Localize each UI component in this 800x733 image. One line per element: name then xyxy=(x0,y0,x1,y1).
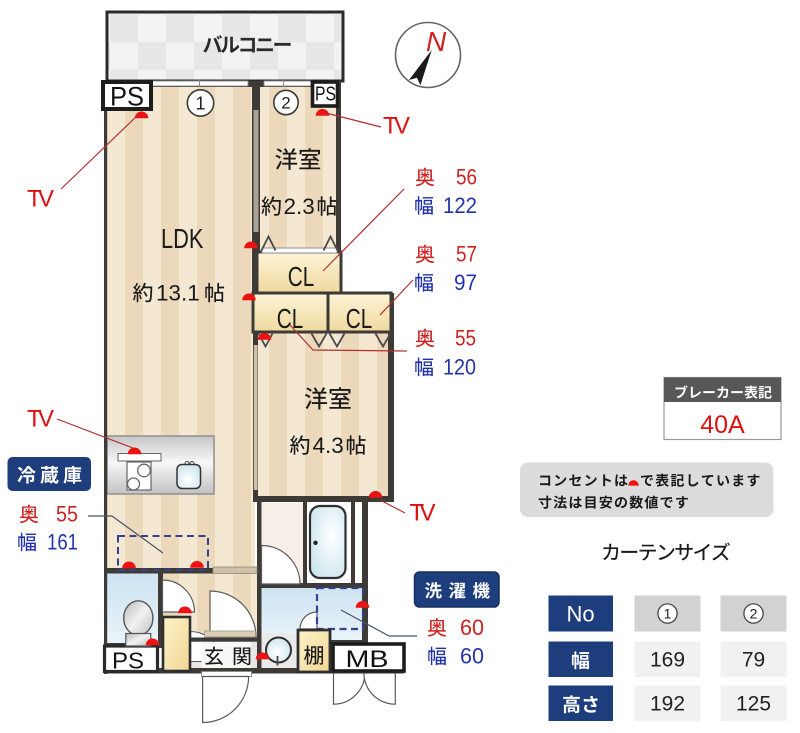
svg-text:1: 1 xyxy=(664,606,672,622)
svg-text:60: 60 xyxy=(460,615,484,640)
svg-text:N: N xyxy=(426,26,447,57)
svg-text:192: 192 xyxy=(650,693,685,716)
svg-text:79: 79 xyxy=(742,649,765,672)
svg-text:TV: TV xyxy=(27,406,54,433)
svg-text:CL: CL xyxy=(346,303,373,334)
svg-text:13.1: 13.1 xyxy=(156,281,200,306)
svg-text:TV: TV xyxy=(410,500,436,527)
svg-text:TV: TV xyxy=(27,186,54,213)
svg-text:LDK: LDK xyxy=(161,223,204,254)
svg-text:No: No xyxy=(566,602,594,627)
svg-text:169: 169 xyxy=(650,649,685,672)
svg-text:CL: CL xyxy=(288,261,315,292)
svg-text:122: 122 xyxy=(443,193,477,218)
svg-text:CL: CL xyxy=(277,303,304,334)
svg-text:161: 161 xyxy=(47,530,78,555)
svg-text:55: 55 xyxy=(56,502,78,527)
svg-text:60: 60 xyxy=(460,644,484,669)
svg-text:56: 56 xyxy=(456,165,477,190)
svg-text:TV: TV xyxy=(383,113,410,140)
svg-text:2: 2 xyxy=(281,94,290,113)
svg-text:1: 1 xyxy=(195,94,205,114)
svg-text:MB: MB xyxy=(346,646,389,673)
svg-text:55: 55 xyxy=(455,326,476,351)
svg-text:2: 2 xyxy=(750,606,758,622)
svg-text:2.3: 2.3 xyxy=(284,194,315,219)
svg-text:125: 125 xyxy=(736,693,771,716)
svg-text:40A: 40A xyxy=(700,411,745,439)
svg-text:57: 57 xyxy=(456,242,477,267)
svg-text:97: 97 xyxy=(454,270,477,295)
svg-text:PS: PS xyxy=(315,83,336,106)
svg-text:120: 120 xyxy=(443,355,476,380)
svg-text:4.3: 4.3 xyxy=(313,433,344,458)
svg-text:PS: PS xyxy=(112,648,144,674)
svg-text:PS: PS xyxy=(110,82,144,112)
